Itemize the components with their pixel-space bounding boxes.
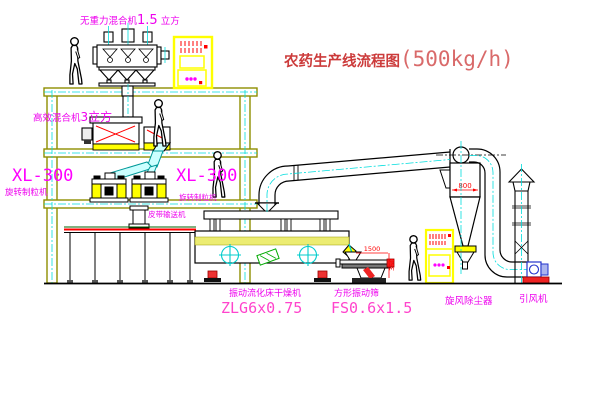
label-granulator-model-mid: XL-300 [176,166,237,186]
diagram-title: 农药生产线流程图(500kg/h) [283,47,514,71]
induced-draft-fan [523,262,549,283]
pesticide-production-line-drawing: 800 [0,0,600,403]
label-belt-conveyor: 皮带输送机 [148,209,186,219]
worker-figure-ground [409,236,421,280]
label-dryer-model: ZLG6x0.75 [221,299,302,317]
label-granulator-model-left: XL-300 [12,166,73,186]
belt-conveyor [64,227,196,283]
rotary-granulator-right [130,172,168,202]
dryer-exhaust-elbow-duct [259,149,450,212]
label-cyclone: 旋风除尘器 [445,295,493,307]
label-gravity-mixer: 无重力混合机1.5 立方 [80,13,180,28]
rotary-granulator-left [90,173,128,202]
granulator-discharge-duct [129,206,149,228]
cyclone-dimension: 800 [458,182,471,190]
sieve-length-dimension: 1500 [364,245,381,253]
label-granulator-name-mid: 旋转制粒机 [179,192,217,202]
gravity-free-mixer [93,23,169,96]
label-sieve-model: FS0.6x1.5 [331,299,412,317]
sieve-height-dimension: 350 [388,259,396,271]
fluid-bed-dryer [195,203,356,282]
worker-figure-roof [70,38,82,84]
control-cabinet-top [174,37,212,88]
label-granulator-name-left: 旋转制粒机 [5,187,48,198]
label-sieve-name: 方形振动筛 [334,287,379,299]
diagram-canvas: 800 [0,0,600,403]
label-dryer-name: 振动流化床干燥机 [229,287,301,299]
control-cabinet-right [426,230,453,283]
label-fan: 引风机 [519,293,548,305]
label-high-eff-mixer: 高效混合机3立方 [33,109,112,124]
